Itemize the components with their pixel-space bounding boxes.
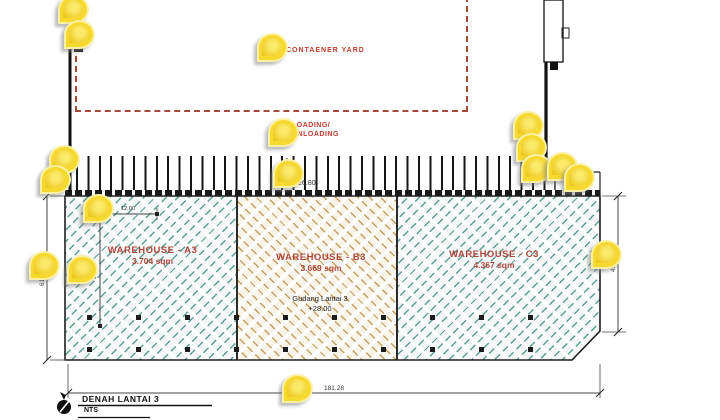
warehouse-north-wall — [65, 190, 600, 196]
warehouse-b3-name: WAREHOUSE - B3 — [240, 252, 402, 263]
north-arrow-needle — [60, 401, 69, 412]
container-yard-label: CONTAENER YARD — [286, 47, 365, 54]
floor-note-line1: Gudang Lantai 3 — [270, 294, 370, 304]
warehouse-c3-size: 4.367 sqm — [408, 260, 580, 270]
warehouse-floor — [65, 196, 600, 360]
map-pin-icon — [282, 374, 313, 403]
floor-note: Gudang Lantai 3 +28.00 — [270, 294, 370, 314]
wall-a3-b3 — [236, 196, 238, 360]
warehouse-c3-label: WAREHOUSE - C3 4.367 sqm — [408, 249, 580, 270]
drawing-title: DENAH LANTAI 3 — [82, 394, 159, 404]
map-pin-icon — [268, 118, 299, 147]
column-row-1 — [87, 315, 570, 320]
column-row-2 — [87, 347, 570, 352]
wall-b3-c3 — [396, 196, 398, 360]
loading-unloading-label: LOADING/ UNLOADING — [292, 121, 339, 139]
map-pin-icon — [564, 163, 595, 192]
floor-note-line2: +28.00 — [270, 304, 370, 314]
right-building-notch — [562, 28, 569, 38]
loading-label-line2: UNLOADING — [292, 130, 339, 139]
warehouse-b3-label: WAREHOUSE - B3 3.669 sqm — [240, 252, 402, 273]
warehouse-c3-area — [397, 196, 600, 360]
loading-dock-ticks — [76, 156, 555, 190]
map-pin-icon — [64, 20, 95, 49]
map-pin-icon — [29, 251, 60, 280]
bottom-dim: 181.28 — [324, 385, 344, 392]
map-pin-icon — [591, 240, 622, 269]
north-arrow-icon — [57, 400, 71, 414]
drawing-scale: NTS — [84, 407, 98, 414]
warehouse-c3-name: WAREHOUSE - C3 — [408, 249, 580, 260]
loading-label-line1: LOADING/ — [292, 121, 339, 130]
right-building-outline — [544, 0, 563, 62]
warehouse-b3-size: 3.669 sqm — [240, 263, 402, 273]
warehouse-b3-area — [237, 196, 397, 360]
map-pin-icon — [83, 194, 114, 223]
north-arrow-point — [60, 392, 66, 400]
right-wall-block — [550, 62, 558, 70]
warehouse-a3-name: WAREHOUSE - A3 — [70, 245, 235, 256]
map-pin-icon — [67, 255, 98, 284]
floor-plan-canvas: CONTAENER YARD LOADING/ UNLOADING WAREHO… — [0, 0, 720, 420]
map-pin-icon — [273, 159, 304, 188]
map-pin-icon — [257, 33, 288, 62]
map-pin-icon — [40, 165, 71, 194]
